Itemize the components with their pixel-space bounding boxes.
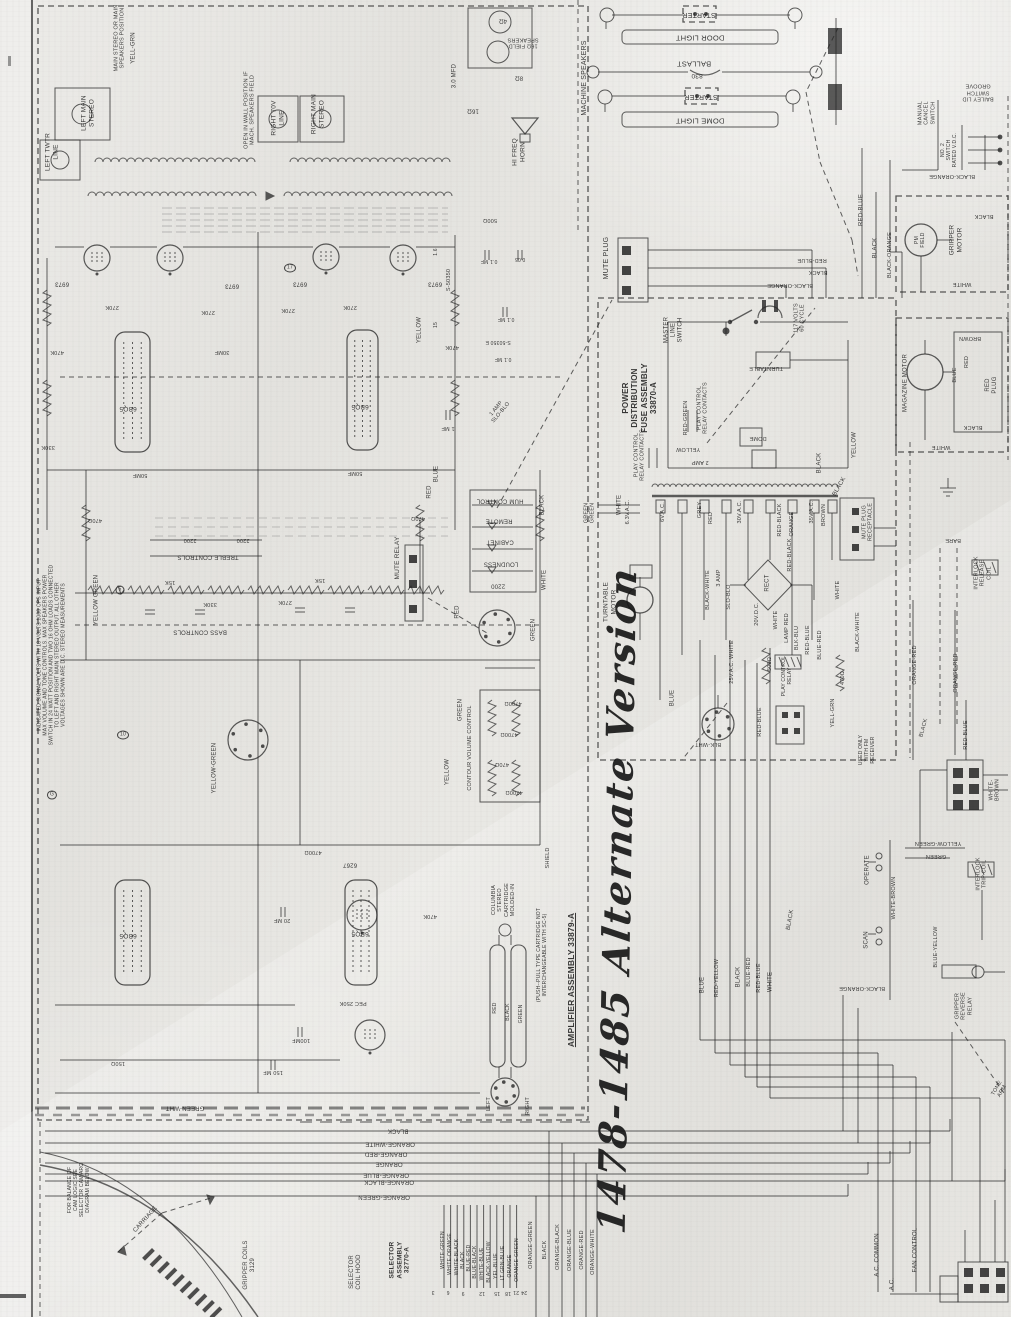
label-0-1-mf-83: 0.1 MF (495, 355, 512, 361)
label-turntable-108: TURNTABLE (749, 365, 783, 371)
label-4700--76: 4700Ω (505, 789, 522, 795)
label-270k-39: 270K (278, 599, 292, 605)
label-treble-controls-54: TREBLE CONTROLS (177, 552, 238, 559)
label-270k-30: 270K (201, 309, 215, 315)
label-6v-a-c--120: 6V.A.C. (660, 502, 666, 522)
label-yellow-green-58: YELLOW-GREEN (211, 743, 218, 794)
label-black-161: BLACK (808, 269, 827, 275)
label-interlock-release-coil-175: INTERLOCK RELEASE COIL (973, 556, 992, 589)
label-no-2-switch-rated-v-d-c--155: NO. 2 SWITCH RATED V.D.C. (941, 133, 959, 168)
label-yellow-green-52: YELLOW GREEN (93, 575, 100, 625)
label-cabinet-61: CABINET (486, 537, 513, 544)
label-mute-relay-57: MUTE RELAY (394, 536, 402, 579)
label-16-field-speakers-10: 16Ω FIELD SPEAKERS (507, 36, 538, 49)
label-yell-grn-145: YELL-GRN (830, 698, 836, 727)
label-black-115: BLACK (816, 453, 823, 474)
label-9-230: 9 (462, 1289, 465, 1295)
label-blue-red-195: BLUE-RED (746, 957, 752, 986)
label-g-50: G (47, 791, 57, 800)
label-contour-volume-control-70: CONTOUR VOLUME CONTROL (467, 705, 473, 790)
label-grey-121: GREY (697, 502, 703, 518)
label-green-68: GREEN (530, 619, 537, 641)
label-pm-field-164: PM FIELD (915, 232, 927, 247)
label-ballast-2: BALLAST (677, 59, 711, 68)
label--push-pull-type-cartridge-no-90: (PUSH--PULL TYPE CARTRIDGE NOT INTERCHAN… (537, 908, 549, 1002)
label-50mf-41: 50MF (348, 470, 363, 476)
label-4700--73: 4700Ω (504, 700, 521, 706)
label-green-wht-103: GREEN-WHT (166, 1103, 205, 1110)
label-black-203: BLACK (388, 1126, 409, 1133)
label-s-50350-e-82: S-50350 E (485, 338, 510, 344)
label-a-c--237: A.C. (889, 1278, 896, 1290)
label-amplifier-assembly-33879-a-87: AMPLIFIER ASSEMBLY 33879-A (566, 913, 576, 1047)
label-black-92: BLACK (506, 1003, 512, 1020)
label-black-orange-189: BLACK-ORANGE (839, 985, 885, 991)
label-green-93: GREEN (519, 1005, 525, 1024)
label-red-blue-178: RED-BLUE (963, 720, 969, 749)
label-a-c-common-236: A.C. COMMON (874, 1233, 881, 1277)
label-black-194: BLACK (735, 967, 742, 988)
label-15-232: 15 (494, 1289, 500, 1295)
label-470--75: 470Ω (495, 761, 509, 767)
label-gripper-coils-3129-200: GRIPPER COILS 3129 (243, 1240, 257, 1289)
label-green-71: GREEN (457, 699, 464, 721)
label-gripper-reverse-relay-188: GRIPPER REVERSE RELAY (954, 992, 973, 1020)
label-orange-white-204: ORANGE-WHITE (365, 1139, 415, 1146)
label-right-95: RIGHT (525, 1097, 531, 1115)
label-orange-green-221: ORANGE-GREEN (515, 1238, 521, 1282)
label-red-blue-157: RED-BLUE (858, 194, 865, 226)
label-white-173: WHITE (932, 444, 951, 450)
label-blue-171: BLUE (952, 367, 958, 382)
label-blue-64: BLUE (433, 466, 440, 482)
label-red-91: RED (493, 1002, 499, 1013)
label-1-6-85: 1.6 (434, 248, 440, 256)
label-6-3v-a-c--119: 6.3V.A.C. (625, 500, 631, 525)
label-orange-red-226: ORANGE-RED (579, 1230, 585, 1269)
label-red-65: RED (426, 485, 433, 498)
label-orange-black-224: ORANGE-BLACK (555, 1224, 561, 1270)
label-interlock-trip-coil-186: INTERLOCK TRIP COIL (976, 857, 989, 890)
label-master-line-switch-106: MASTER LINE SWITCH (663, 317, 684, 343)
label-slo-blo-130: SLO-BLO (726, 584, 732, 609)
label-orange-blue-225: ORANGE-BLUE (567, 1229, 573, 1271)
label-red-yellow-193: RED-YELLOW (714, 959, 720, 997)
label-loudness-62: LOUDNESS (484, 559, 519, 566)
label-830-3: 830 (691, 71, 702, 79)
label-mute-plug-receptacle-148: MUTE PLUG RECEPTACLE (862, 503, 875, 541)
label-100mf-101: 100MF (292, 1037, 310, 1043)
label-6973-24: 6973 (428, 279, 442, 286)
label-blue-192: BLUE (699, 977, 706, 993)
label-red-122: RED (708, 512, 714, 524)
label-500--78: 500Ω (483, 217, 497, 223)
label-white-blue-216: WHITE-BLUE (480, 1248, 486, 1281)
label-black-white-128: BLACK-WHITE (705, 570, 711, 610)
label-used-only-with-fm-receiver-149: USED ONLY WITH FM RECEIVER (859, 735, 877, 765)
label-30v-a-c--123: 30V.A.C. (737, 500, 743, 523)
label-orange-206: ORANGE (375, 1159, 402, 1166)
label-6bq5-28: 6BQ5 (351, 929, 368, 937)
label-black-yellow-217: BLACK-YELLOW (487, 1241, 493, 1282)
label-6973-23: 6973 (293, 279, 307, 286)
label-470--141: 470Ω (840, 671, 846, 685)
label-red-plug-168: RED PLUG (985, 376, 999, 395)
label-manual-cancel-switch-153: MANUAL CANCEL SWITCH (917, 101, 936, 125)
label-black-white-146: BLACK-WHITE (855, 612, 861, 652)
label-3-amp-129: 3 AMP (716, 569, 722, 586)
label-yellow-46: YELLOW (416, 317, 423, 343)
label-3-0-mfd-9: 3.0 MFD (451, 64, 458, 88)
label-24-235: 24 (521, 1288, 527, 1294)
label-17-47: 17 (284, 264, 296, 273)
label-black-172: BLACK (963, 424, 982, 430)
label-2200-63: 2200 (491, 581, 505, 588)
label-play-control-relay-140: PLAY CONTROL RELAY (782, 656, 794, 697)
label-starter-0: STARTER (682, 10, 715, 18)
label-black-158: BLACK (872, 238, 879, 259)
label-150-mf-102: 150 MF (263, 1069, 283, 1075)
label-s-50350-77: S-50350 (446, 269, 452, 291)
label-black-66: BLACK (539, 495, 546, 516)
label-6973-21: 6973 (55, 279, 69, 286)
label-470--44: 470Ω (88, 517, 102, 523)
label-yellow-green-184: YELLOW-GREEN (915, 840, 962, 846)
label-blue-138: BLUE (669, 690, 676, 706)
label-scan-182: SCAN (863, 931, 870, 948)
label-30mf-42: 30MF (215, 349, 230, 355)
label-330k-38: 330K (203, 601, 217, 607)
label-4--12: 4Ω (499, 16, 507, 23)
label-470k-34: 470K (445, 344, 459, 350)
label-white-144: WHITE (835, 581, 841, 600)
label-6267-96: 6267 (343, 860, 357, 867)
label-35v-a-c--126: 35V.A.C. (809, 500, 815, 523)
label-left-94: LEFT (486, 1097, 492, 1111)
label-power-distribution-fuse-asse-105: POWER DISTRIBUTION FUSE ASSEMBLY 33870-A (621, 363, 659, 433)
label-bare-174: BARE (945, 537, 961, 543)
label-selector-assembly-32770-a-202: SELECTOR ASSEMBLY 32770-A (389, 1241, 412, 1278)
label-red-170: RED (964, 356, 970, 368)
label-16--13: 16Ω (467, 106, 479, 113)
label-blue-red-143: BLUE-RED (817, 630, 823, 659)
label-shield-88: SHIELD (545, 847, 551, 868)
label-black-223: BLACK (542, 1240, 548, 1259)
label-blk-wht-150: BLK-WHT (695, 741, 721, 747)
label-50mf-40: 50MF (133, 472, 148, 478)
label-blue-yellow-187: BLUE-YELLOW (933, 926, 939, 967)
label-500--139: 500Ω (767, 657, 773, 671)
label-white-brown-180: WHITE-BROWN (989, 779, 1002, 801)
scan-smudge-left-tick (8, 56, 11, 66)
label-2200-55: 2200 (183, 537, 196, 543)
label-columbia-stereo-cartridge-mo-89: COLUMBIA STEREO CARTRIDGE MOLDED-IN (491, 883, 517, 917)
label-brown-169: BROWN (959, 335, 981, 341)
label-for-balance-of-cam-logic-see-198: FOR BALANCE OF CAM LOGIC SEE SELECTOR CA… (68, 1163, 92, 1217)
label-main-stereo-or-main-speakers-16: MAIN STEREO OR MAIN SPEAKERS POSITION (114, 5, 127, 72)
label-15k-36: 15K (165, 579, 175, 585)
label-2200-56: 2200 (236, 537, 249, 543)
label-pec-250k-100: PEC 250K (339, 1000, 366, 1006)
label-dome-light-5: DOME LIGHT (676, 116, 725, 125)
label-8--11: 8Ω (515, 73, 523, 80)
label-470k-33: 470K (50, 349, 64, 355)
label-0-1-mf-79: 0.1 MF (481, 257, 498, 263)
label-black-orange-162: BLACK-ORANGE (767, 282, 813, 288)
label-machine-speakers-6: MACHINE SPEAKERS (581, 40, 589, 115)
label-150--104: 150Ω (111, 1060, 125, 1066)
scanned-schematic-page: STARTERDOOR LIGHTBALLAST830STARTERDOME L… (0, 0, 1011, 1317)
label-indicated-signal-volts-with--51: INDICATED SIGNAL VOLTS WITH 18 VOLTS 100… (37, 565, 66, 746)
label-door-light-1: DOOR LIGHT (676, 33, 725, 42)
label-white-67: WHITE (541, 570, 548, 590)
label-yellow-72: YELLOW (444, 759, 451, 785)
label-21-234: 21 (513, 1288, 519, 1294)
label-270k-31: 270K (281, 307, 295, 313)
label-red-69: RED (454, 605, 461, 618)
label-bass-controls-53: BASS CONTROLS (173, 627, 227, 634)
label-2-amp-113: 2 AMP (691, 459, 708, 465)
label-red-black-124: RED-BLACK (777, 503, 783, 536)
label-4700--74: 4700Ω (500, 731, 517, 737)
label-lamp-red-134: LAMP RED (784, 613, 790, 643)
label-15-86: 15 (434, 322, 440, 328)
label-270k-32: 270K (343, 304, 357, 310)
label-lt-grn-blue-219: LT GRN-BLUE (501, 1246, 507, 1281)
label-5-48: 5 (116, 586, 125, 595)
label-rect-131: RECT (764, 574, 771, 591)
label-red-black-136: RED-BLACK (787, 538, 793, 571)
label-magazine-motor-167: MAGAZINE MOTOR (902, 354, 909, 412)
label-hum-control-59: HUM CONTROL (477, 496, 524, 503)
label-red-blue-160: RED-BLUE (797, 257, 826, 263)
label-open-in-wall-position-if-mac-18: OPEN IN WALL POSITION IF MACH. SPEAKERS … (244, 71, 257, 149)
label-270k-29: 270K (105, 304, 119, 310)
label-red-blue-151: RED-BLUE (757, 707, 763, 736)
label-20-mf-99: 20 MF (274, 917, 291, 923)
label-6bq5-26: 6BQ5 (351, 402, 368, 410)
label-4700--97: 4700Ω (304, 849, 321, 855)
label-white-brown-183: WHITE-BROWN (891, 877, 897, 920)
label-orange-green-222: ORANGE-GREEN (528, 1221, 534, 1269)
label-yellow-112: YELLOW (676, 446, 700, 452)
label-blue-black-215: BLUE-BLACK (473, 1245, 479, 1278)
label-white-133: WHITE (773, 611, 779, 630)
label-0-1-mf-81: 0.1 MF (498, 315, 515, 321)
label-white-117: WHITE (616, 495, 623, 515)
label-6-229: 6 (447, 1288, 450, 1294)
label-black-orange-156: BLACK-ORANGE (929, 173, 975, 179)
scan-smudge-bottom-left (0, 1294, 26, 1298)
label-fan-control-238: FAN CONTROL (912, 1228, 919, 1273)
label-brown-127: BROWN (821, 504, 827, 526)
label-0-05-80: 0.05 (515, 255, 526, 261)
label-black-orange-159: BLACK-ORANGE (887, 232, 893, 278)
label-orange-white-227: ORANGE-WHITE (590, 1229, 596, 1275)
label-orange-125: ORANGE (789, 511, 795, 536)
label-25v-a-c-white-137: 25V.A.C. WHITE (729, 640, 735, 684)
label-yel-blue-218: YEL-BLUE (494, 1253, 500, 1279)
label-dome-114: DOME (749, 435, 766, 441)
label-10-49: 10 (117, 731, 129, 740)
label-330k-35: 330K (41, 444, 55, 450)
label-right-70v-line-19: RIGHT 70V LINE (270, 100, 285, 135)
label-15k-37: 15K (315, 577, 325, 583)
label-play-control-relay-contacts-110: PLAY CONTROL RELAY CONTACTS (634, 429, 647, 481)
label-gripper-motor-163: GRIPPER MOTOR (948, 225, 963, 256)
label-white-orange-211: WHITE-ORANGE (448, 1233, 454, 1275)
label-yell-grn-17: YELL-GRN (130, 32, 137, 64)
label-white-197: WHITE (767, 972, 774, 992)
label-18-233: 18 (505, 1289, 511, 1295)
label-blk-blu-135: BLK-BLU (794, 626, 800, 650)
label-left-main-stereo-14: LEFT MAIN STEREO (80, 95, 95, 131)
label-470k-98: 470K (423, 913, 437, 919)
label-117-volts-60-cycle-107: 117 VOLTS 60 CYCLE (794, 303, 807, 333)
label-operate-181: OPERATE (864, 855, 871, 885)
label-orange-red-176: ORANGE-RED (912, 645, 918, 684)
label-bailey-lid-switch-groove-154: BAILEY LID SWITCH GROOVE (962, 82, 993, 101)
label-orange-red-177: ORANGE-RED (953, 653, 959, 692)
label-red-blue-196: RED-BLUE (756, 963, 762, 992)
label-right-main-stereo-20: RIGHT MAIN STEREO (310, 94, 325, 134)
label-orange-black-208: ORANGE-BLACK (364, 1177, 414, 1184)
label-3-228: 3 (432, 1288, 435, 1294)
label-1-mf-43: 1 MF (441, 425, 454, 431)
label-black-165: BLACK (974, 213, 993, 219)
label-6973-22: 6973 (225, 281, 239, 288)
label-remote-60: REMOTE (486, 516, 513, 523)
label-12-231: 12 (479, 1289, 485, 1295)
label-6bq5-25: 6BQ5 (119, 404, 136, 412)
label-mute-plug-7: MUTE PLUG (603, 237, 611, 280)
label-yellow-147: YELLOW (851, 432, 858, 458)
label-red-blue-142: RED-BLUE (805, 625, 811, 654)
label-green-185: GREEN (926, 853, 947, 859)
label-hi-freq-horn-8: HI FREQ HORN (511, 138, 526, 166)
label-6bq5-27: 6BQ5 (119, 931, 136, 939)
label-orange-220: ORANGE (508, 1255, 514, 1278)
label-selector-coil-hood-201: SELECTOR COIL HOOD (349, 1254, 363, 1289)
label-orange-green-209: ORANGE-GREEN (358, 1192, 410, 1199)
label-20v-d-c--132: 20V.D.C. (754, 602, 760, 625)
label-play-control-relay-contacts-109: PLAY CONTROL RELAY CONTACTS (697, 382, 710, 434)
label-green-green-118: GREEN GREEN (584, 503, 597, 524)
label-orange-red-205: ORANGE-RED (365, 1149, 408, 1156)
label-white-166: WHITE (953, 281, 972, 287)
label-470--45: 470Ω (411, 515, 425, 521)
label-red-green-111: RED-GREEN (683, 401, 689, 436)
label-left-twtr-line-15: LEFT TWTR LINE (44, 133, 59, 171)
label-starter-4: STARTER (684, 92, 717, 100)
label-white-green-210: WHITE-GREEN (441, 1231, 447, 1269)
